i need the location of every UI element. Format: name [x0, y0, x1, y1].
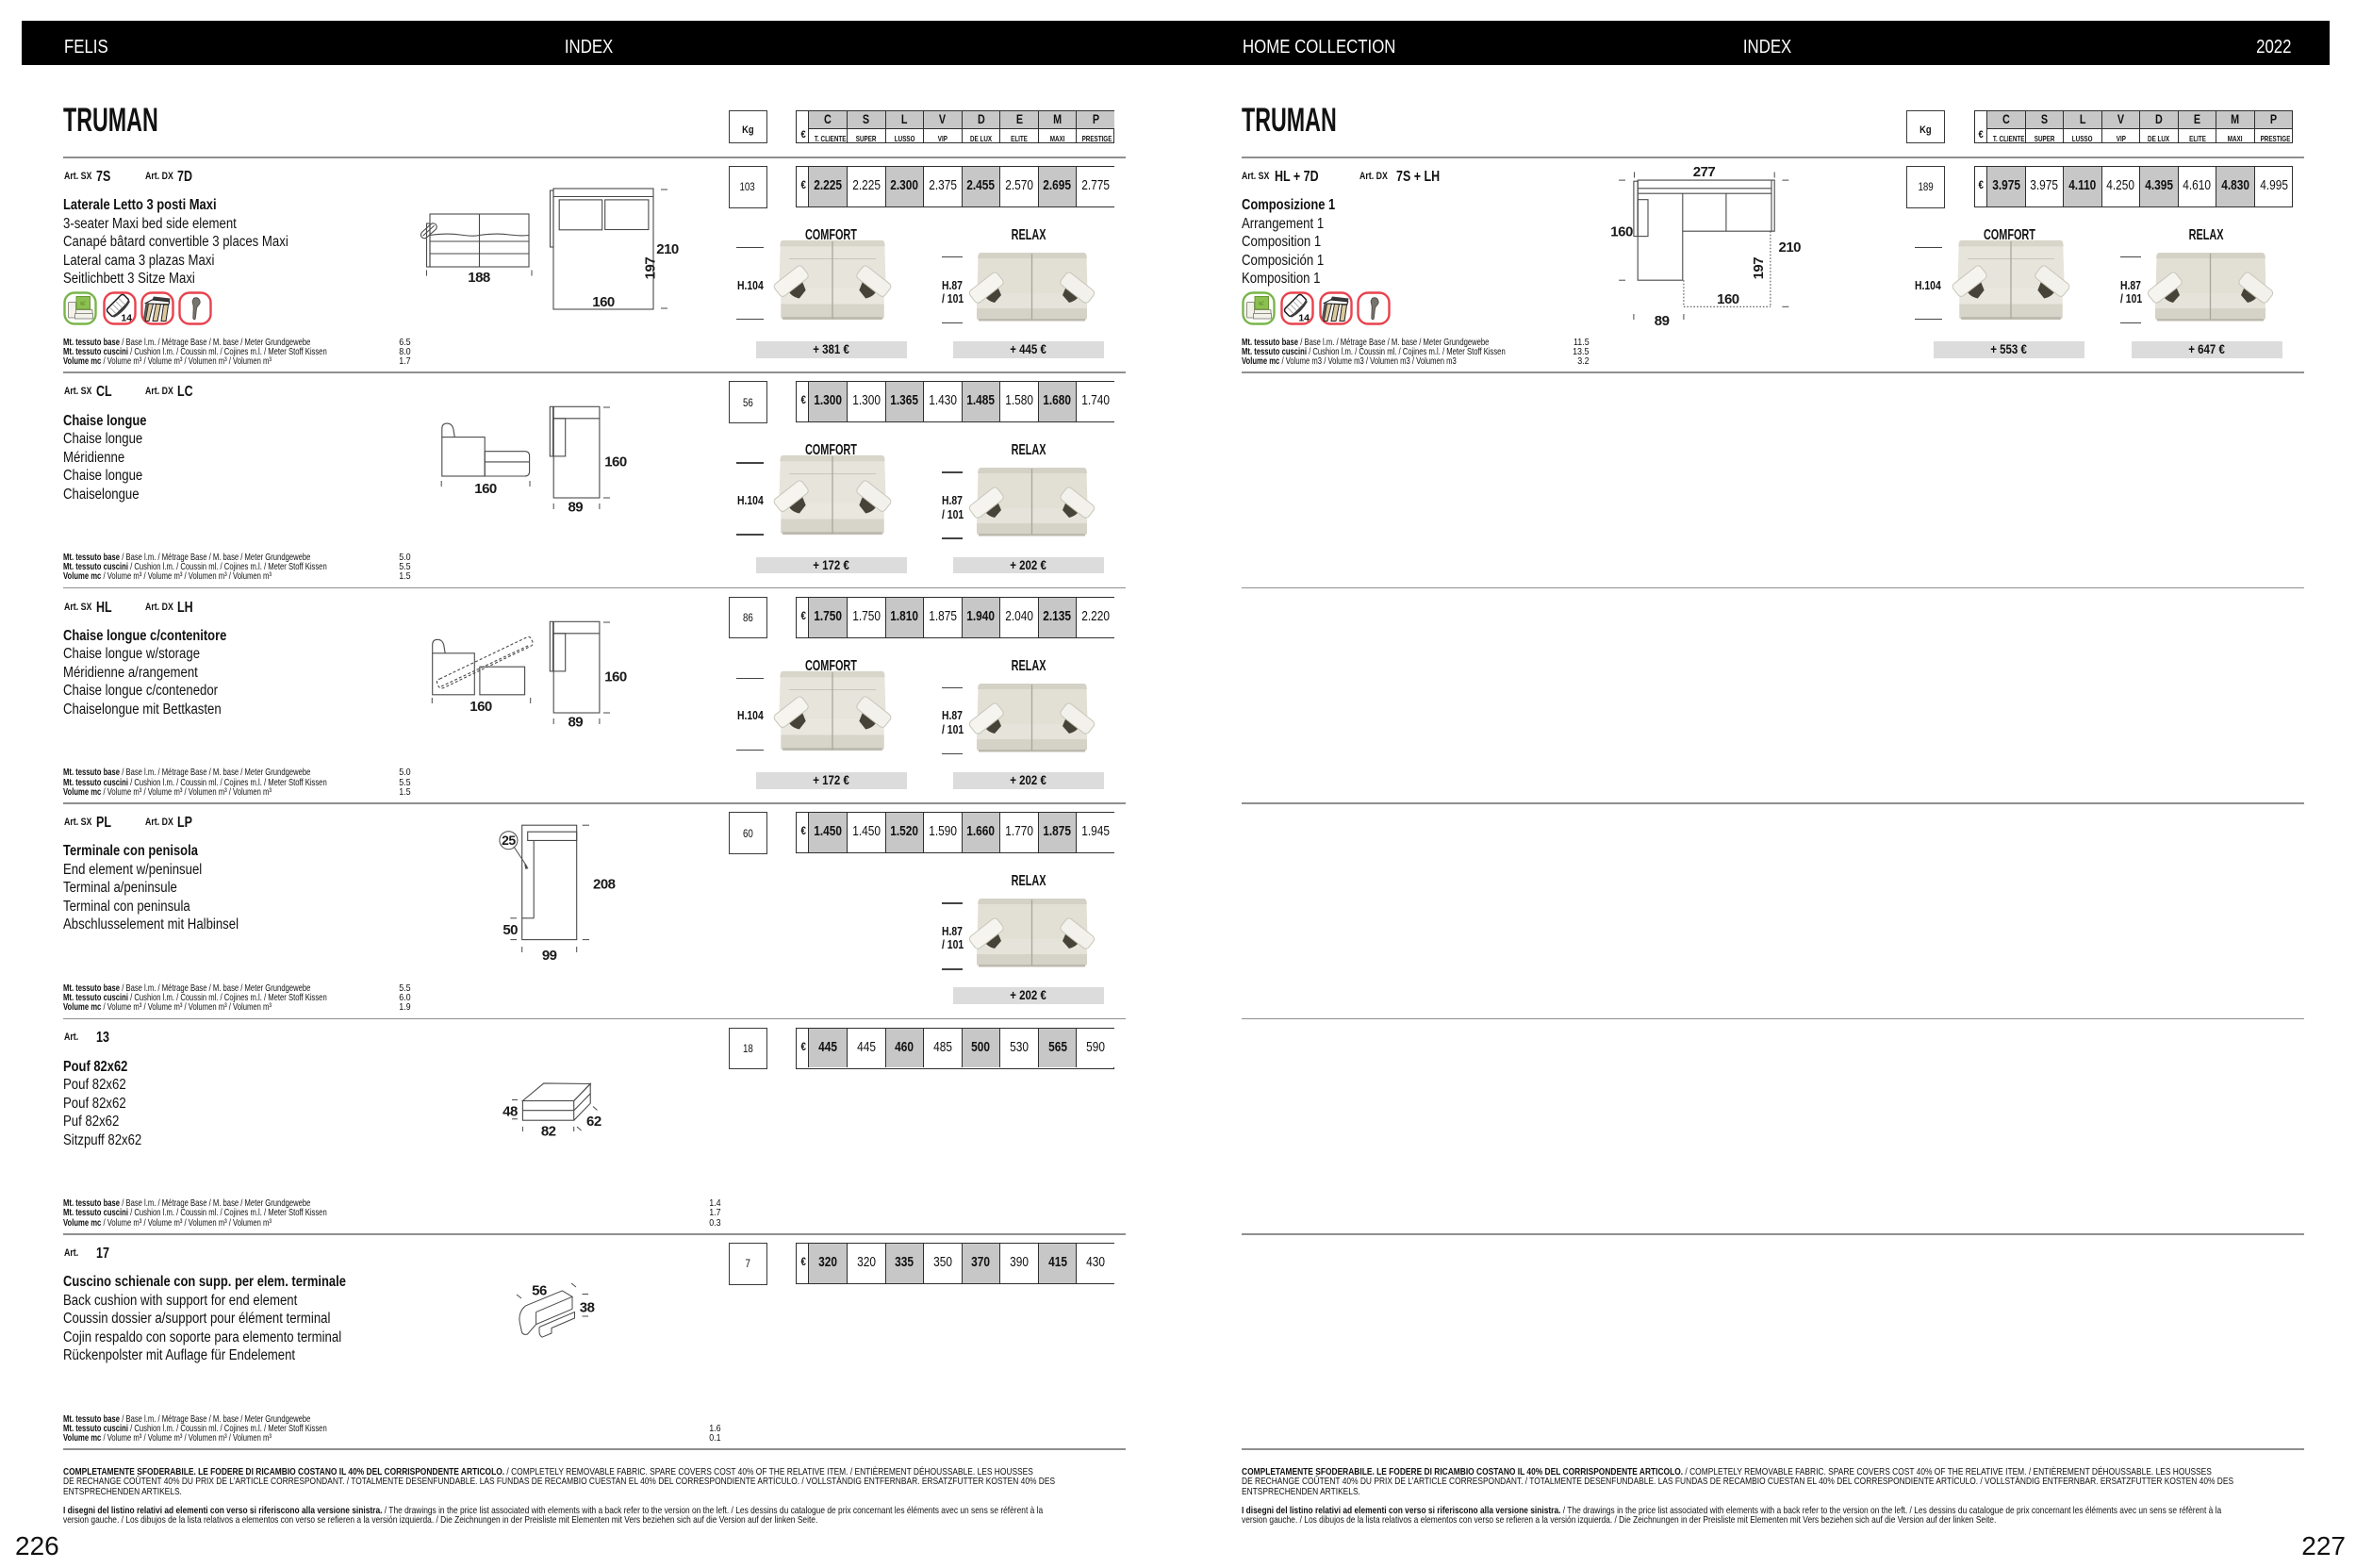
svg-text:89: 89: [1655, 313, 1670, 329]
svg-text:25: 25: [502, 833, 516, 848]
svg-text:160: 160: [1717, 291, 1739, 307]
svg-text:14: 14: [121, 312, 132, 323]
svg-text:277: 277: [1693, 164, 1716, 180]
svg-text:188: 188: [468, 270, 490, 286]
svg-text:160: 160: [474, 481, 497, 497]
svg-text:197: 197: [1751, 257, 1767, 280]
svg-text:50: 50: [503, 922, 518, 938]
svg-text:208: 208: [593, 876, 616, 892]
svg-text:160: 160: [1610, 224, 1633, 240]
svg-text:160: 160: [470, 699, 492, 715]
svg-text:160: 160: [592, 294, 615, 310]
svg-text:160: 160: [604, 669, 627, 685]
svg-text:197: 197: [643, 257, 659, 280]
svg-text:160: 160: [604, 454, 627, 470]
svg-text:56: 56: [532, 1282, 547, 1298]
svg-text:210: 210: [656, 241, 679, 257]
svg-text:62: 62: [586, 1114, 601, 1130]
svg-text:99: 99: [542, 948, 557, 964]
svg-text:89: 89: [568, 715, 583, 731]
svg-text:82: 82: [541, 1123, 556, 1139]
svg-text:48: 48: [503, 1103, 518, 1119]
svg-text:89: 89: [568, 500, 583, 516]
svg-text:14: 14: [1298, 312, 1310, 323]
svg-text:38: 38: [580, 1299, 595, 1315]
svg-text:210: 210: [1779, 239, 1802, 256]
